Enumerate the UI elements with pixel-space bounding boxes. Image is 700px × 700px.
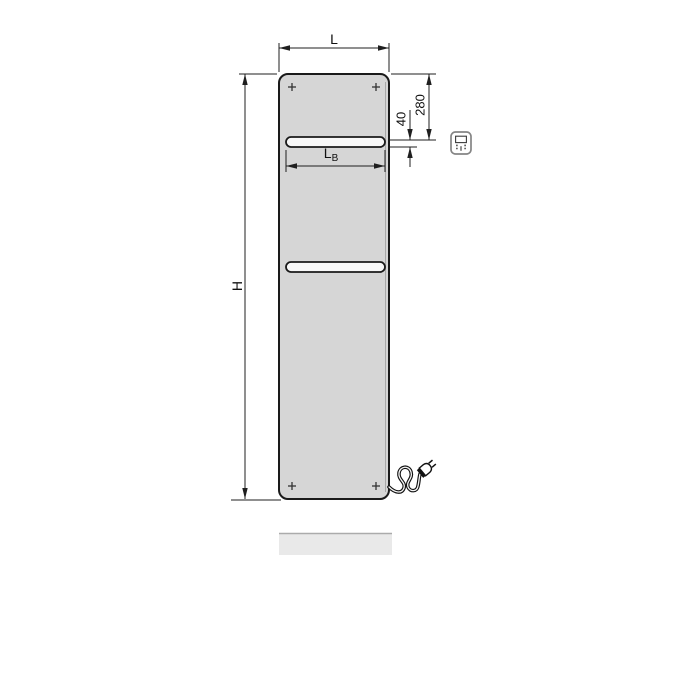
width-dimension-label: L [330, 32, 338, 46]
height-dimension-label: H [230, 281, 244, 291]
slot-width-label-main: L [324, 145, 332, 161]
power-cord [389, 467, 420, 492]
radiator-dimension-diagram: L H 280 40 LB [0, 0, 700, 700]
electric-controller-icon [451, 132, 471, 154]
slot-height-dimension-label: 40 [395, 112, 408, 126]
slot-width-label-subscript: B [332, 153, 339, 164]
slot-width-dimension-label: LB [324, 146, 338, 164]
diagram-canvas [0, 0, 700, 700]
top-offset-dimension-label: 280 [414, 94, 427, 116]
floor-shadow [279, 533, 392, 555]
towel-slot-bottom [286, 262, 385, 272]
